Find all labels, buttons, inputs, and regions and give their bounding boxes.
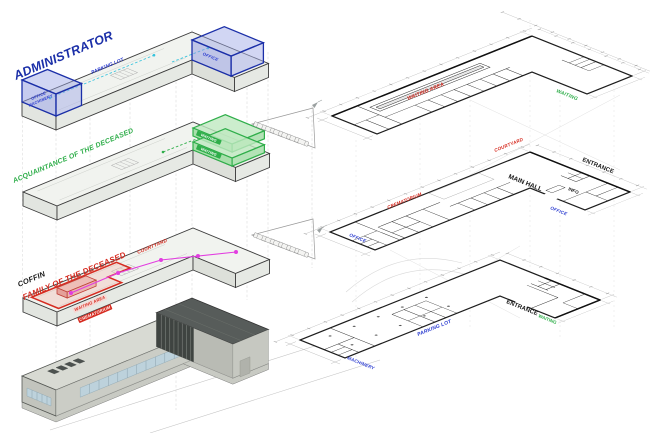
path-node [162,151,165,154]
path-node [69,291,73,295]
diagram-canvas: ADMINISTRATOR PARKING LOT OFFICE MACHINE… [0,0,650,433]
path-node [159,258,163,262]
path-node [196,254,200,258]
path-node [153,54,156,57]
architectural-diagram-sheet: ADMINISTRATOR PARKING LOT OFFICE MACHINE… [0,0,650,433]
path-node [116,271,120,275]
path-node [234,250,238,254]
